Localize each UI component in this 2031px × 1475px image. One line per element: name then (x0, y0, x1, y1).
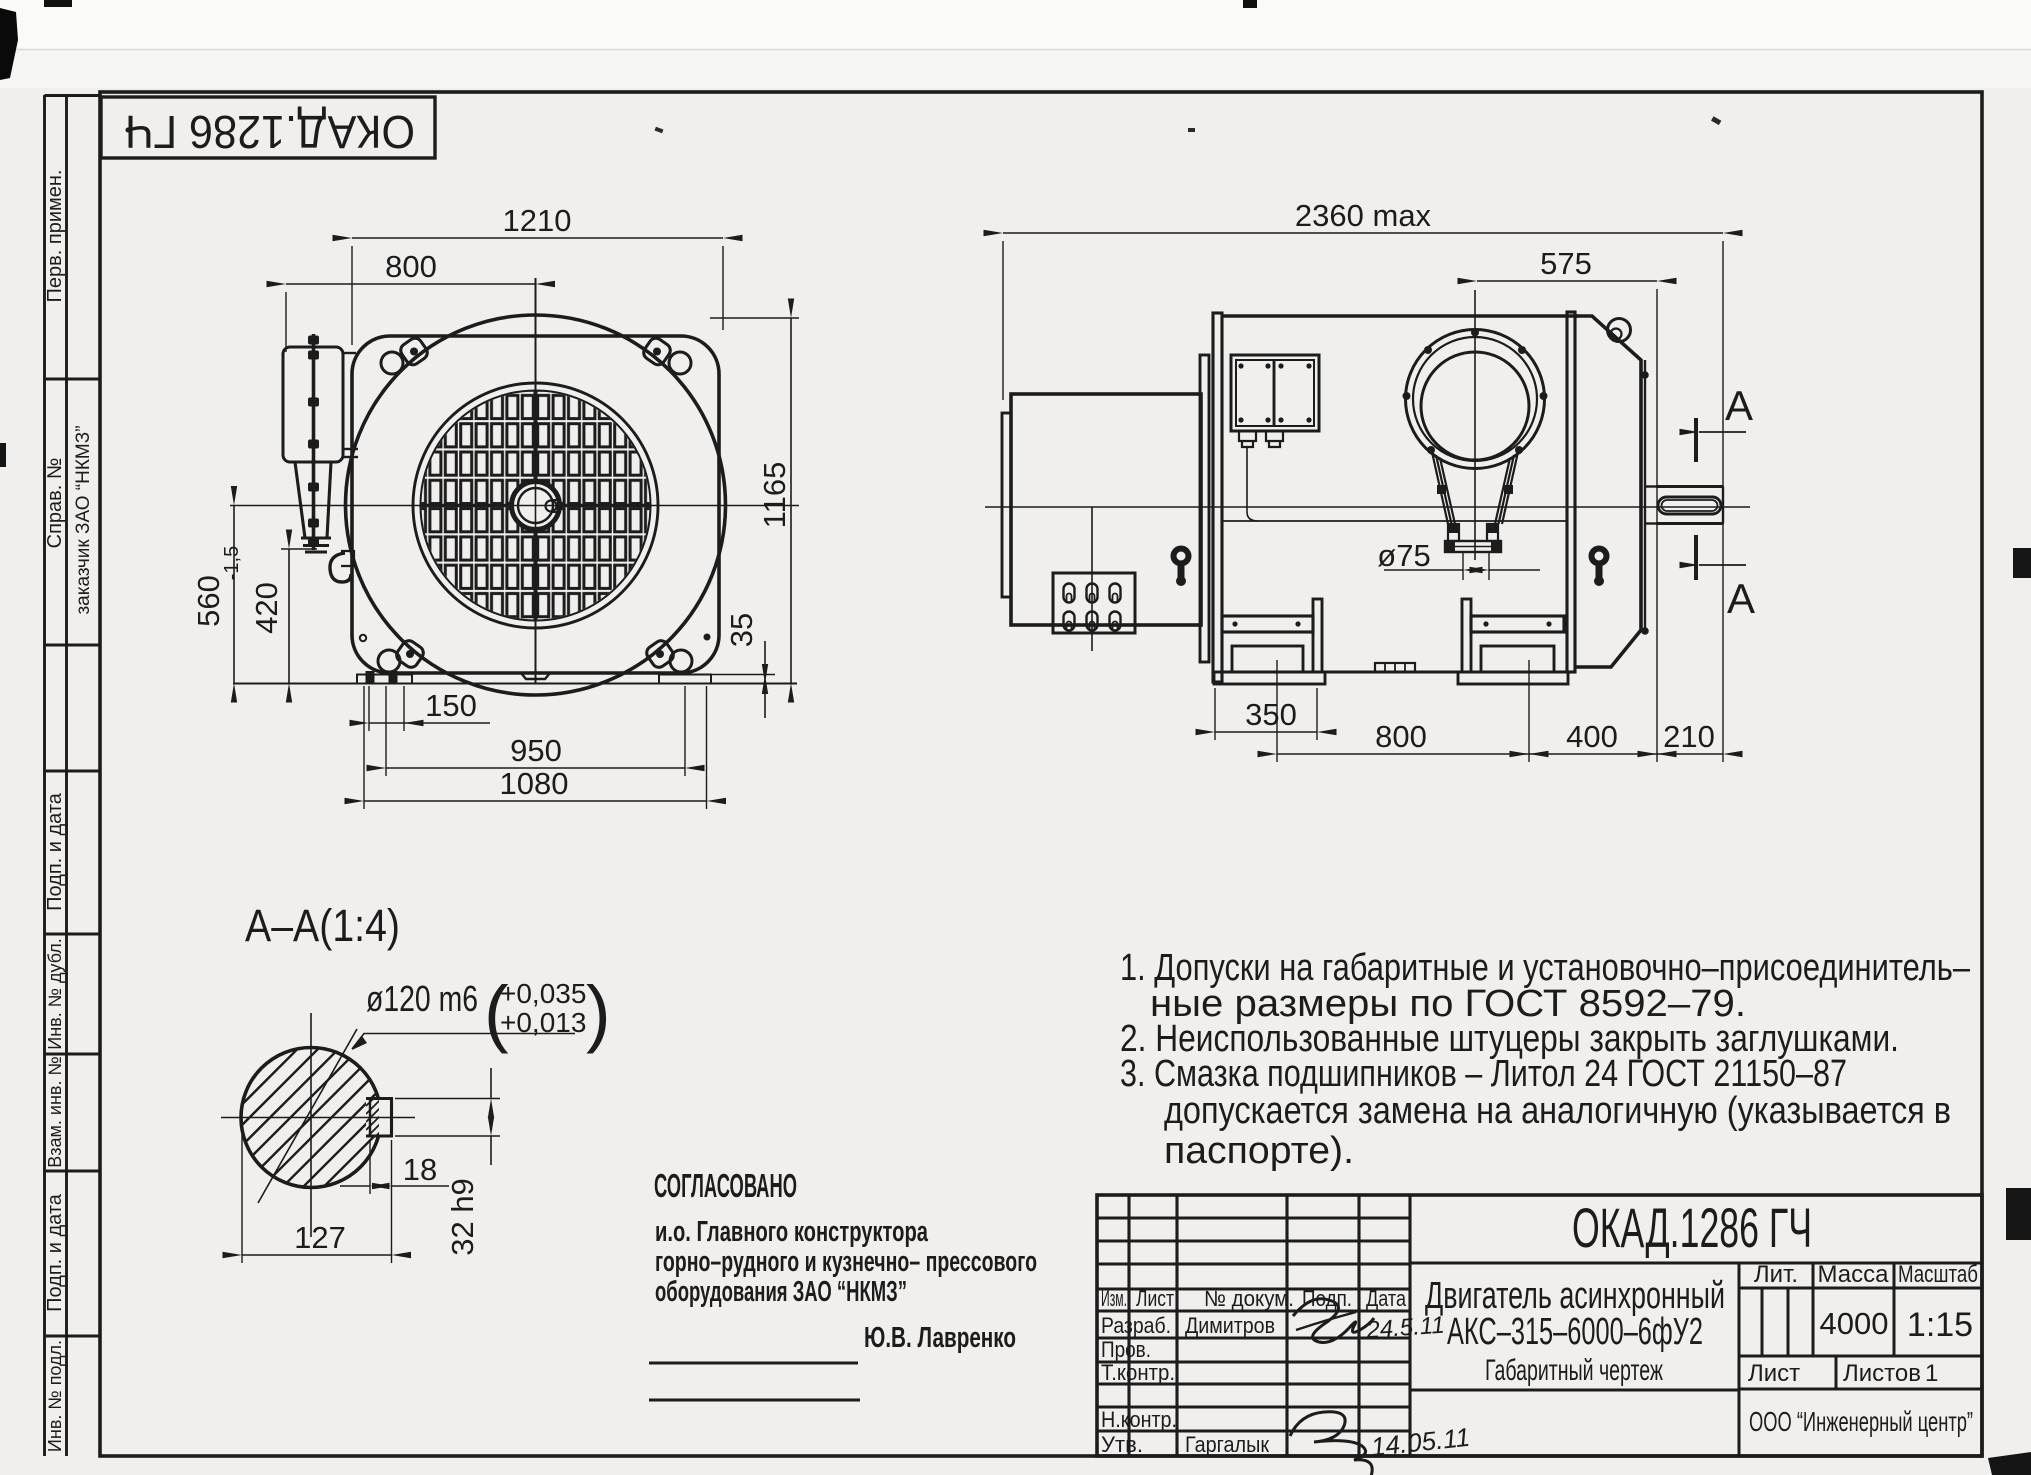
svg-text:800: 800 (385, 249, 437, 284)
svg-text:паспорте).: паспорте). (1164, 1130, 1354, 1172)
svg-text:3. Смазка подшипников – Литол: 3. Смазка подшипников – Литол 24 ГОСТ 21… (1120, 1053, 1847, 1095)
svg-text:Взам. инв. №: Взам. инв. № (45, 1056, 65, 1168)
svg-text:Дата: Дата (1366, 1286, 1407, 1311)
svg-text:32 h9: 32 h9 (445, 1178, 480, 1256)
svg-text:ø120 m6: ø120 m6 (366, 978, 478, 1019)
svg-text:1165: 1165 (757, 462, 792, 529)
svg-text:2360 max: 2360 max (1295, 198, 1432, 233)
svg-text:950: 950 (510, 733, 562, 768)
svg-text:1: 1 (1925, 1360, 1938, 1387)
svg-text:420: 420 (249, 582, 284, 634)
svg-text:800: 800 (1375, 719, 1427, 754)
svg-text:Т.контр.: Т.контр. (1101, 1360, 1175, 1385)
svg-text:4000: 4000 (1820, 1306, 1889, 1341)
svg-text:A: A (1725, 382, 1753, 429)
svg-text:Н.контр.: Н.контр. (1101, 1407, 1177, 1432)
svg-text:заказчик ЗАО “НКМЗ”: заказчик ЗАО “НКМЗ” (73, 425, 94, 614)
svg-text:(: ( (484, 971, 509, 1054)
svg-text:Лист: Лист (1136, 1286, 1174, 1311)
svg-text:560: 560 (191, 575, 226, 627)
svg-text:Утв.: Утв. (1101, 1432, 1143, 1457)
svg-text:575: 575 (1540, 246, 1592, 281)
svg-text:150: 150 (425, 688, 477, 723)
svg-text:1210: 1210 (503, 203, 572, 238)
svg-text:А–А(1:4): А–А(1:4) (245, 900, 400, 951)
svg-text:№ докум.: № докум. (1204, 1286, 1294, 1311)
svg-text:A: A (1727, 575, 1755, 622)
svg-text:Инв. № дубл.: Инв. № дубл. (45, 938, 65, 1049)
svg-text:оборудования ЗАО “НКМЗ”: оборудования ЗАО “НКМЗ” (655, 1276, 907, 1308)
svg-text:Перв. примен.: Перв. примен. (44, 170, 66, 303)
svg-text:400: 400 (1566, 719, 1618, 754)
svg-text:Справ. №: Справ. № (44, 458, 66, 549)
svg-text:ø75: ø75 (1377, 538, 1430, 573)
svg-text:Лит.: Лит. (1754, 1261, 1798, 1288)
svg-text:): ) (586, 971, 611, 1054)
svg-text:1080: 1080 (500, 766, 569, 801)
svg-text:210: 210 (1663, 719, 1715, 754)
svg-text:и.о. Главного конструктора: и.о. Главного конструктора (655, 1216, 929, 1248)
svg-text:Листов: Листов (1843, 1360, 1921, 1387)
svg-text:АКС–315–6000–6фУ2: АКС–315–6000–6фУ2 (1447, 1311, 1703, 1353)
svg-text:24.5.11: 24.5.11 (1365, 1312, 1446, 1344)
svg-text:Лист: Лист (1748, 1360, 1800, 1387)
svg-text:-1,5: -1,5 (221, 546, 243, 580)
svg-text:Димитров: Димитров (1185, 1313, 1275, 1338)
svg-text:350: 350 (1245, 697, 1297, 732)
svg-text:+0,035: +0,035 (500, 978, 586, 1009)
svg-text:допускается замена на аналогич: допускается замена на аналогичную (указы… (1164, 1090, 1951, 1132)
svg-text:Подп. и дата: Подп. и дата (44, 1193, 66, 1312)
svg-text:Ю.В. Лавренко: Ю.В. Лавренко (864, 1322, 1016, 1354)
svg-text:ОКАД.1286 ГЧ: ОКАД.1286 ГЧ (125, 106, 415, 158)
svg-text:ООО “Инженерный центр”: ООО “Инженерный центр” (1749, 1406, 1973, 1437)
svg-text:Подп. и дата: Подп. и дата (44, 792, 66, 911)
svg-text:35: 35 (724, 613, 759, 647)
svg-text:ОКАД.1286 ГЧ: ОКАД.1286 ГЧ (1572, 1196, 1812, 1259)
svg-text:Инв. № подл.: Инв. № подл. (45, 1340, 65, 1452)
svg-text:Масса: Масса (1818, 1261, 1890, 1288)
svg-text:Масштаб: Масштаб (1898, 1261, 1978, 1288)
svg-text:Разраб.: Разраб. (1101, 1313, 1171, 1338)
svg-text:18: 18 (403, 1152, 437, 1187)
svg-text:Пров.: Пров. (1101, 1337, 1151, 1362)
svg-text:1:15: 1:15 (1907, 1306, 1973, 1344)
svg-text:СОГЛАСОВАНО: СОГЛАСОВАНО (654, 1167, 797, 1204)
svg-text:Габаритный чертеж: Габаритный чертеж (1485, 1354, 1663, 1387)
svg-text:Изм.: Изм. (1101, 1286, 1127, 1311)
svg-text:горно–рудного и кузнечно– прес: горно–рудного и кузнечно– прессового (655, 1246, 1037, 1278)
svg-text:Гаргалык: Гаргалык (1185, 1432, 1269, 1457)
svg-text:127: 127 (294, 1220, 346, 1255)
